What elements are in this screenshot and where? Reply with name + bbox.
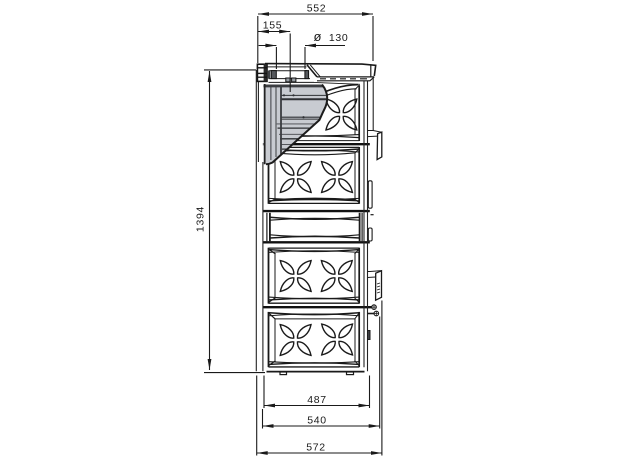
svg-text:155: 155 [263,20,283,32]
svg-text:ø 130: ø 130 [314,29,349,44]
svg-text:487: 487 [307,394,327,406]
svg-text:1394: 1394 [195,206,207,232]
svg-text:552: 552 [307,2,327,14]
svg-text:572: 572 [306,442,326,454]
svg-text:540: 540 [307,415,327,427]
